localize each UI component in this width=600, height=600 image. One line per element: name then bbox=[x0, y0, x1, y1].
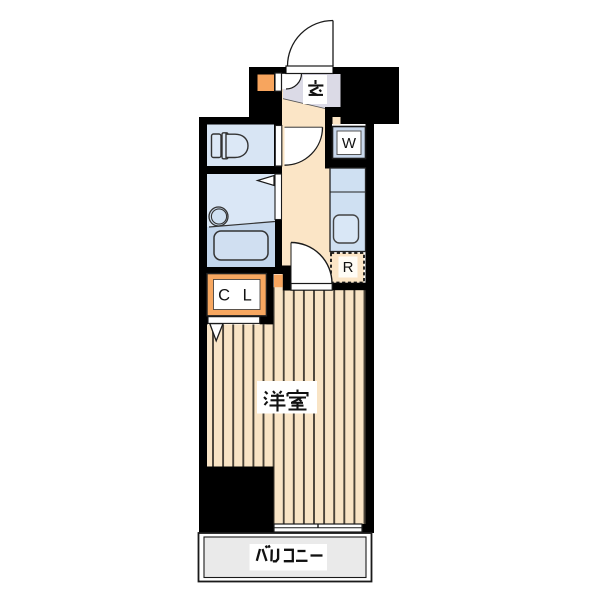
svg-text:R: R bbox=[343, 259, 354, 276]
svg-text:C L: C L bbox=[218, 287, 256, 305]
svg-text:W: W bbox=[342, 135, 357, 152]
